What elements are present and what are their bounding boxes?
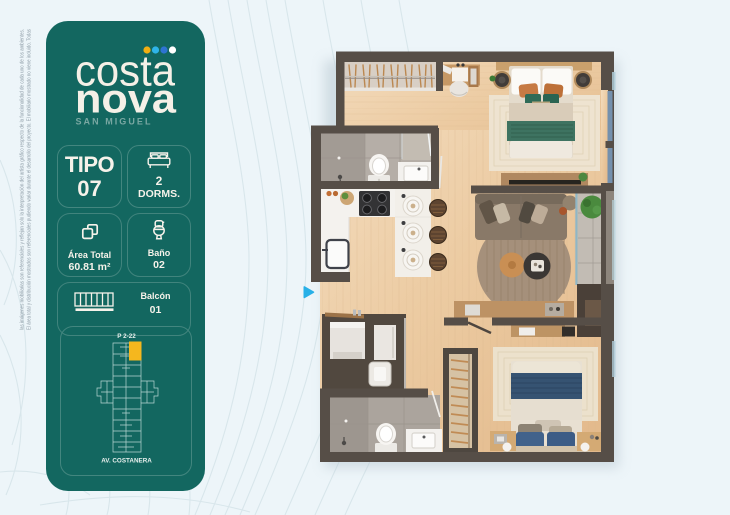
svg-text:AV. COSTANERA: AV. COSTANERA <box>101 458 152 465</box>
svg-text:P 2-22: P 2-22 <box>117 333 136 340</box>
svg-text:las imágenes mobiliarias son r: las imágenes mobiliarias son referencial… <box>20 29 26 330</box>
svg-text:SAN MIGUEL: SAN MIGUEL <box>76 117 153 127</box>
svg-text:nova: nova <box>75 76 177 122</box>
svg-text:El área total y distribución m: El área total y distribución mostrados s… <box>27 29 33 330</box>
